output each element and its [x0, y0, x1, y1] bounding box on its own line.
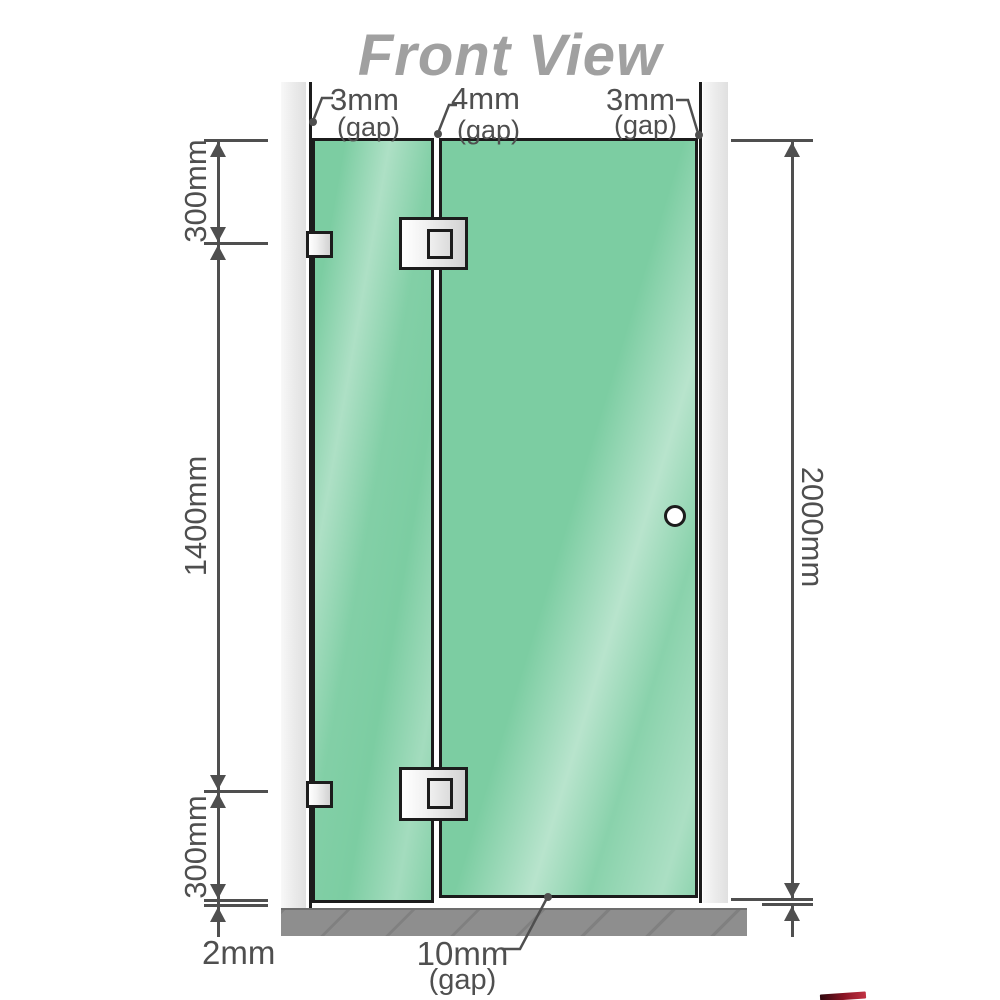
right-wall	[703, 82, 728, 903]
wall-bracket-bottom	[306, 781, 333, 808]
door-glass-panel	[439, 138, 698, 898]
arrow-up-icon	[210, 245, 226, 260]
logo-fragment	[820, 991, 866, 1000]
door-handle-icon	[664, 505, 686, 527]
gap-label-bottom-unit: (gap)	[415, 966, 510, 995]
dimension-tick	[731, 898, 813, 901]
dim-label-2000: 2000mm	[794, 467, 830, 588]
dim-label-top-300: 300mm	[178, 139, 214, 242]
shower-screen-front-view-diagram: Front View 300mm 1400mm 300mm 2mm	[0, 0, 1000, 1000]
arrow-up-icon	[784, 906, 800, 921]
dimension-tick	[204, 899, 268, 902]
right-wall-edge-line	[699, 82, 702, 903]
arrow-down-icon	[210, 775, 226, 790]
dim-label-1400: 1400mm	[178, 456, 214, 577]
wall-bracket-top	[306, 231, 333, 258]
dim-label-2mm: 2mm	[202, 934, 275, 972]
floor	[281, 908, 747, 936]
gap-label-left-unit: (gap)	[337, 114, 400, 141]
gap-label-right-unit: (gap)	[614, 112, 677, 139]
dim-label-bottom-300: 300mm	[178, 795, 214, 898]
dimension-tick	[731, 139, 813, 142]
gap-label-middle-unit: (gap)	[457, 117, 520, 144]
left-wall	[281, 82, 306, 908]
gap-label-middle-value: 4mm	[451, 83, 520, 114]
arrow-up-icon	[784, 142, 800, 157]
arrow-down-icon	[784, 883, 800, 898]
page-title: Front View	[358, 22, 662, 89]
hinge-bottom-clamp-icon	[427, 778, 453, 809]
arrow-up-icon	[210, 907, 226, 922]
gap-label-left-value: 3mm	[330, 84, 399, 115]
hinge-top-clamp-icon	[427, 229, 453, 259]
